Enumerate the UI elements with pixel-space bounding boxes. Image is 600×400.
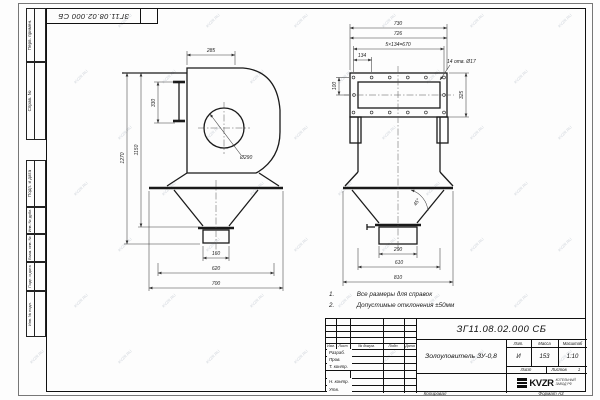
note-2: 2. Допустимые отклонения ±50мм xyxy=(326,302,454,309)
dim-base-width-front: 810 xyxy=(394,275,403,281)
kvzr-logo-icon xyxy=(517,378,527,388)
tb-scale-value: 1:10 xyxy=(558,347,587,366)
frame-label: Справ. № xyxy=(26,62,34,140)
dim-flange-width: 726 xyxy=(394,31,403,37)
copied-label: Копировал xyxy=(395,391,475,396)
dim-outlet-width: 160 xyxy=(212,251,221,257)
dim-cone-top: 610 xyxy=(395,260,404,266)
dim-cone-width: 620 xyxy=(212,266,221,272)
kvzr-logo-subline-2: ЗАВОД РФ xyxy=(556,383,576,387)
note-text: Допустимые отклонения ±50мм xyxy=(357,302,455,309)
note-number: 1. xyxy=(326,291,355,298)
kvzr-logo-text: KVZR xyxy=(529,378,553,389)
tb-row-nkontr: Н. контр. xyxy=(327,378,352,385)
kvzr-logo-subtext: КОТЕЛЬНЫЙ ЗАВОД РФ xyxy=(556,379,576,386)
dim-base-width: 700 xyxy=(212,281,221,287)
tb-sheet-label: Лист xyxy=(506,366,546,373)
front-view-dimensions: 730 726 5×134=670 134 14 отв. Ø17 100 xyxy=(332,21,476,286)
format-label: Формат А3 xyxy=(518,391,584,396)
tb-mass-value: 153 xyxy=(531,347,558,366)
dim-cone-angle: 45° xyxy=(413,198,422,208)
frame-label: Подп. и дата xyxy=(26,262,34,291)
dim-hole-pitch: 134 xyxy=(358,53,367,59)
dim-flange-height: 325 xyxy=(459,91,465,100)
dim-inlet-height: 330 xyxy=(151,99,157,108)
tb-lit-value: И xyxy=(506,347,531,366)
tb-part-name: Золоуловитель ЗУ-0,8 xyxy=(416,339,506,373)
dim-hole-spacing: 5×134=670 xyxy=(385,42,411,48)
left-view-dimensions: 285 330 1150 1270 Ø290 160 xyxy=(120,48,283,291)
dim-outlet-width-front: 290 xyxy=(393,247,403,253)
frame-label: Подп. и дата xyxy=(26,160,34,207)
dim-overall-width: 730 xyxy=(394,21,403,27)
tb-row-tkontr: Т. контр. xyxy=(327,363,352,370)
tb-sheets-label: Листов xyxy=(546,366,572,373)
tb-row-prov: Пров. xyxy=(327,356,352,363)
tb-sheets-value: 1 xyxy=(572,366,586,373)
note-1: 1. Все размеры для справок xyxy=(326,291,432,298)
title-block: Изм. Лист № докум. Подп. Дата Разраб. Пр… xyxy=(325,318,586,392)
frame-label: Взам. инв. № xyxy=(26,234,34,262)
dim-holes-note: 14 отв. Ø17 xyxy=(447,59,476,65)
tb-mass-label: Масса xyxy=(531,339,558,347)
dim-inlet-diameter: Ø290 xyxy=(239,155,252,161)
tb-col-data: Дата xyxy=(404,343,416,349)
dim-flange-left: 100 xyxy=(332,82,338,91)
tb-col-dokum: № докум. xyxy=(350,343,383,349)
tb-scale-label: Масштаб xyxy=(558,339,587,347)
drawing-sheet: KVZR.RUKVZR.RUKVZR.RUKVZR.RUKVZR.RUKVZR.… xyxy=(0,0,600,400)
frame-label: Инв. № подл. xyxy=(26,291,34,337)
tb-row-utv: Утв. xyxy=(327,385,352,393)
drawing-views: 285 330 1150 1270 Ø290 160 xyxy=(46,8,586,318)
frame-label: Перв. примен. xyxy=(26,8,34,62)
tb-designation: ЗГ11.08.02.000 СБ xyxy=(416,319,587,339)
dim-body-height: 1150 xyxy=(134,144,140,155)
dim-top-width: 285 xyxy=(206,48,216,54)
frame-label: Инв. № дубл. xyxy=(26,207,34,234)
tb-col-podp: Подп. xyxy=(383,343,404,349)
front-view-geometry xyxy=(343,66,454,250)
tb-row-razrab: Разраб. xyxy=(327,349,352,356)
note-text: Все размеры для справок xyxy=(357,291,432,298)
note-number: 2. xyxy=(326,302,355,309)
tb-lit-label: Лит. xyxy=(506,339,531,347)
left-view-geometry xyxy=(122,68,283,250)
dim-total-height: 1270 xyxy=(120,152,126,163)
tb-logo-cell: KVZR КОТЕЛЬНЫЙ ЗАВОД РФ xyxy=(506,373,587,393)
